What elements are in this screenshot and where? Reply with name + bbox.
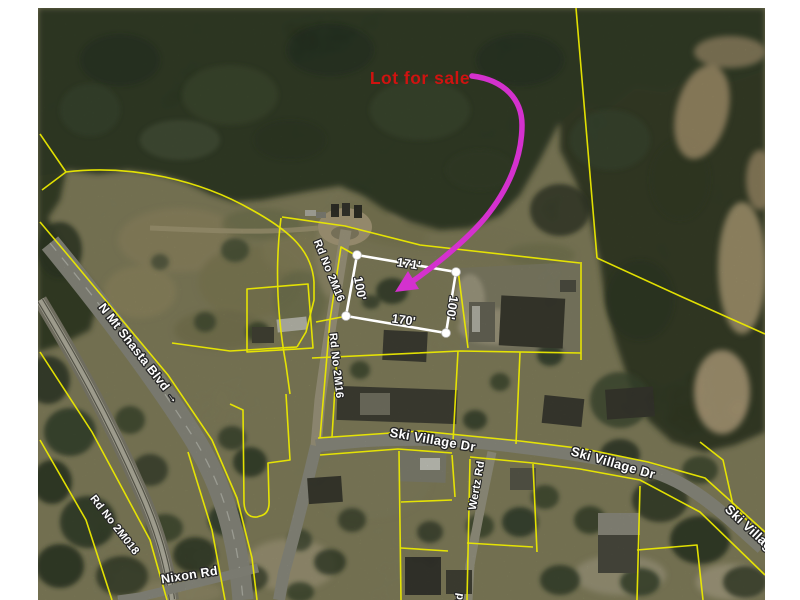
map-canvas: 171' 100' 100' 170' N Mt Shasta Blvd → R… xyxy=(0,0,800,600)
lot-corner xyxy=(452,268,461,277)
satellite-map-image: 171' 100' 100' 170' N Mt Shasta Blvd → R… xyxy=(0,0,800,600)
lot-corner xyxy=(442,329,451,338)
lot-corner xyxy=(353,251,362,260)
lot-corner xyxy=(342,312,351,321)
lot-for-sale-label: Lot for sale xyxy=(370,68,470,88)
photo-grain xyxy=(38,8,765,600)
